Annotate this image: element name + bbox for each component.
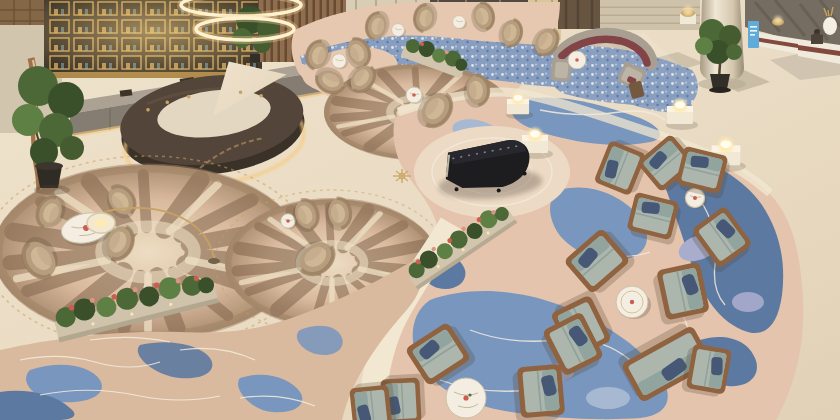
ambient-light — [0, 0, 840, 420]
lobby-scene — [0, 0, 840, 420]
hotel-lobby-photo — [0, 0, 840, 420]
